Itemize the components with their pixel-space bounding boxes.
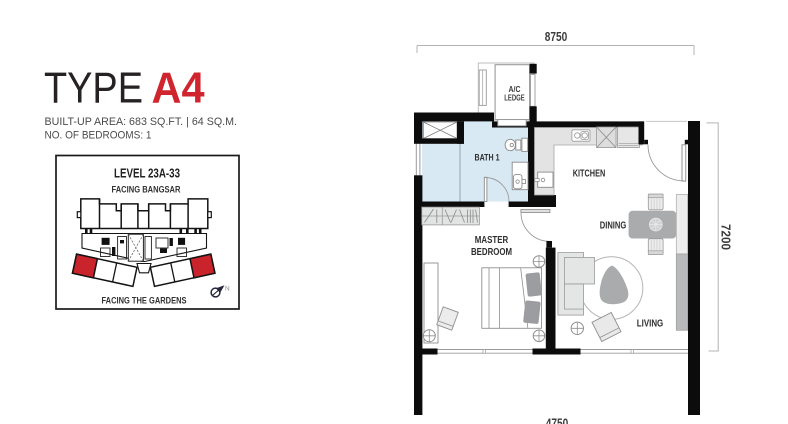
svg-text:8750: 8750 xyxy=(545,30,568,44)
svg-text:TYPE: TYPE xyxy=(44,65,143,113)
svg-text:FACING THE GARDENS: FACING THE GARDENS xyxy=(102,296,187,307)
svg-text:BATH 1: BATH 1 xyxy=(475,153,501,164)
svg-text:FACING BANGSAR: FACING BANGSAR xyxy=(112,184,181,195)
svg-text:A4: A4 xyxy=(152,65,205,113)
svg-text:LIVING: LIVING xyxy=(637,318,664,329)
svg-text:KITCHEN: KITCHEN xyxy=(573,169,606,180)
svg-text:MASTER: MASTER xyxy=(475,234,509,246)
svg-text:7200: 7200 xyxy=(719,224,733,250)
svg-text:BUILT-UP AREA: 683 SQ.FT. | 64: BUILT-UP AREA: 683 SQ.FT. | 64 SQ.M. xyxy=(45,116,238,128)
svg-text:LEVEL 23A-33: LEVEL 23A-33 xyxy=(114,167,180,181)
svg-text:DINING: DINING xyxy=(600,220,627,231)
svg-text:N: N xyxy=(225,286,230,293)
svg-text:NO. OF BEDROOMS: 1: NO. OF BEDROOMS: 1 xyxy=(45,130,152,142)
svg-text:4750: 4750 xyxy=(546,417,569,424)
svg-text:LEDGE: LEDGE xyxy=(504,94,525,103)
svg-text:BEDROOM: BEDROOM xyxy=(471,246,512,258)
